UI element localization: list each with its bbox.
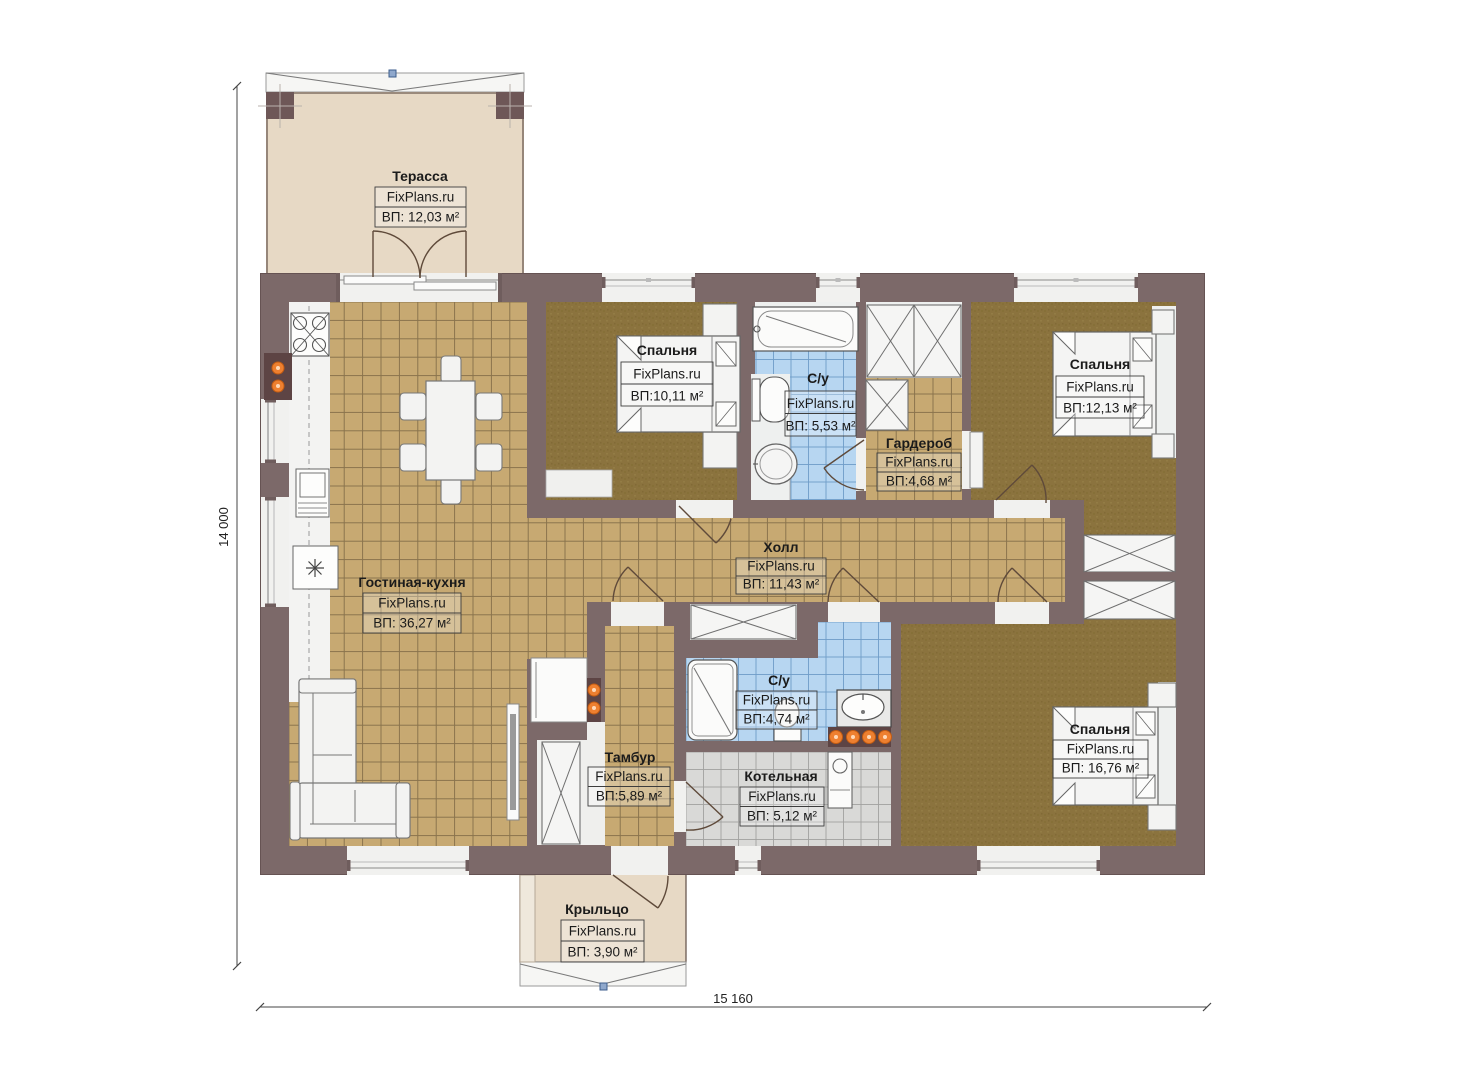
svg-text:FixPlans.ru: FixPlans.ru <box>747 559 815 574</box>
svg-text:Холл: Холл <box>763 539 798 555</box>
svg-text:ВП: 16,76 м²: ВП: 16,76 м² <box>1062 761 1140 776</box>
svg-text:FixPlans.ru: FixPlans.ru <box>569 924 637 939</box>
svg-text:Котельная: Котельная <box>744 768 817 784</box>
svg-text:Крыльцо: Крыльцо <box>565 901 629 917</box>
svg-text:15 160: 15 160 <box>713 991 753 1006</box>
svg-text:ВП:5,89 м²: ВП:5,89 м² <box>596 789 663 804</box>
svg-text:ВП: 36,27 м²: ВП: 36,27 м² <box>373 616 451 631</box>
svg-text:FixPlans.ru: FixPlans.ru <box>743 693 811 708</box>
svg-text:Спальня: Спальня <box>1070 356 1130 372</box>
svg-text:FixPlans.ru: FixPlans.ru <box>633 367 701 382</box>
svg-text:Спальня: Спальня <box>637 342 697 358</box>
svg-text:ВП:4,68 м²: ВП:4,68 м² <box>886 474 953 489</box>
svg-text:ВП:12,13 м²: ВП:12,13 м² <box>1063 401 1137 416</box>
svg-text:ВП:4,74 м²: ВП:4,74 м² <box>743 712 810 727</box>
svg-text:FixPlans.ru: FixPlans.ru <box>748 789 816 804</box>
svg-text:ВП: 12,03 м²: ВП: 12,03 м² <box>382 210 460 225</box>
svg-text:FixPlans.ru: FixPlans.ru <box>1066 380 1134 395</box>
svg-text:FixPlans.ru: FixPlans.ru <box>595 769 663 784</box>
svg-text:Гардероб: Гардероб <box>886 435 953 451</box>
svg-text:С/у: С/у <box>768 672 790 688</box>
svg-text:Спальня: Спальня <box>1070 721 1130 737</box>
svg-text:С/у: С/у <box>807 370 829 386</box>
svg-text:Тамбур: Тамбур <box>605 749 656 765</box>
svg-text:Гостиная-кухня: Гостиная-кухня <box>358 574 465 590</box>
svg-text:FixPlans.ru: FixPlans.ru <box>787 396 855 411</box>
svg-text:ВП: 3,90 м²: ВП: 3,90 м² <box>567 945 638 960</box>
svg-text:ВП: 5,12 м²: ВП: 5,12 м² <box>747 809 818 824</box>
svg-text:FixPlans.ru: FixPlans.ru <box>1067 742 1135 757</box>
svg-text:14 000: 14 000 <box>216 507 231 547</box>
svg-text:FixPlans.ru: FixPlans.ru <box>885 455 953 470</box>
svg-text:Терасса: Терасса <box>392 168 448 184</box>
svg-text:ВП: 11,43 м²: ВП: 11,43 м² <box>743 577 820 592</box>
svg-text:FixPlans.ru: FixPlans.ru <box>387 190 455 205</box>
svg-text:ВП: 5,53 м²: ВП: 5,53 м² <box>785 419 856 434</box>
svg-text:FixPlans.ru: FixPlans.ru <box>378 596 446 611</box>
svg-text:ВП:10,11 м²: ВП:10,11 м² <box>631 389 704 404</box>
